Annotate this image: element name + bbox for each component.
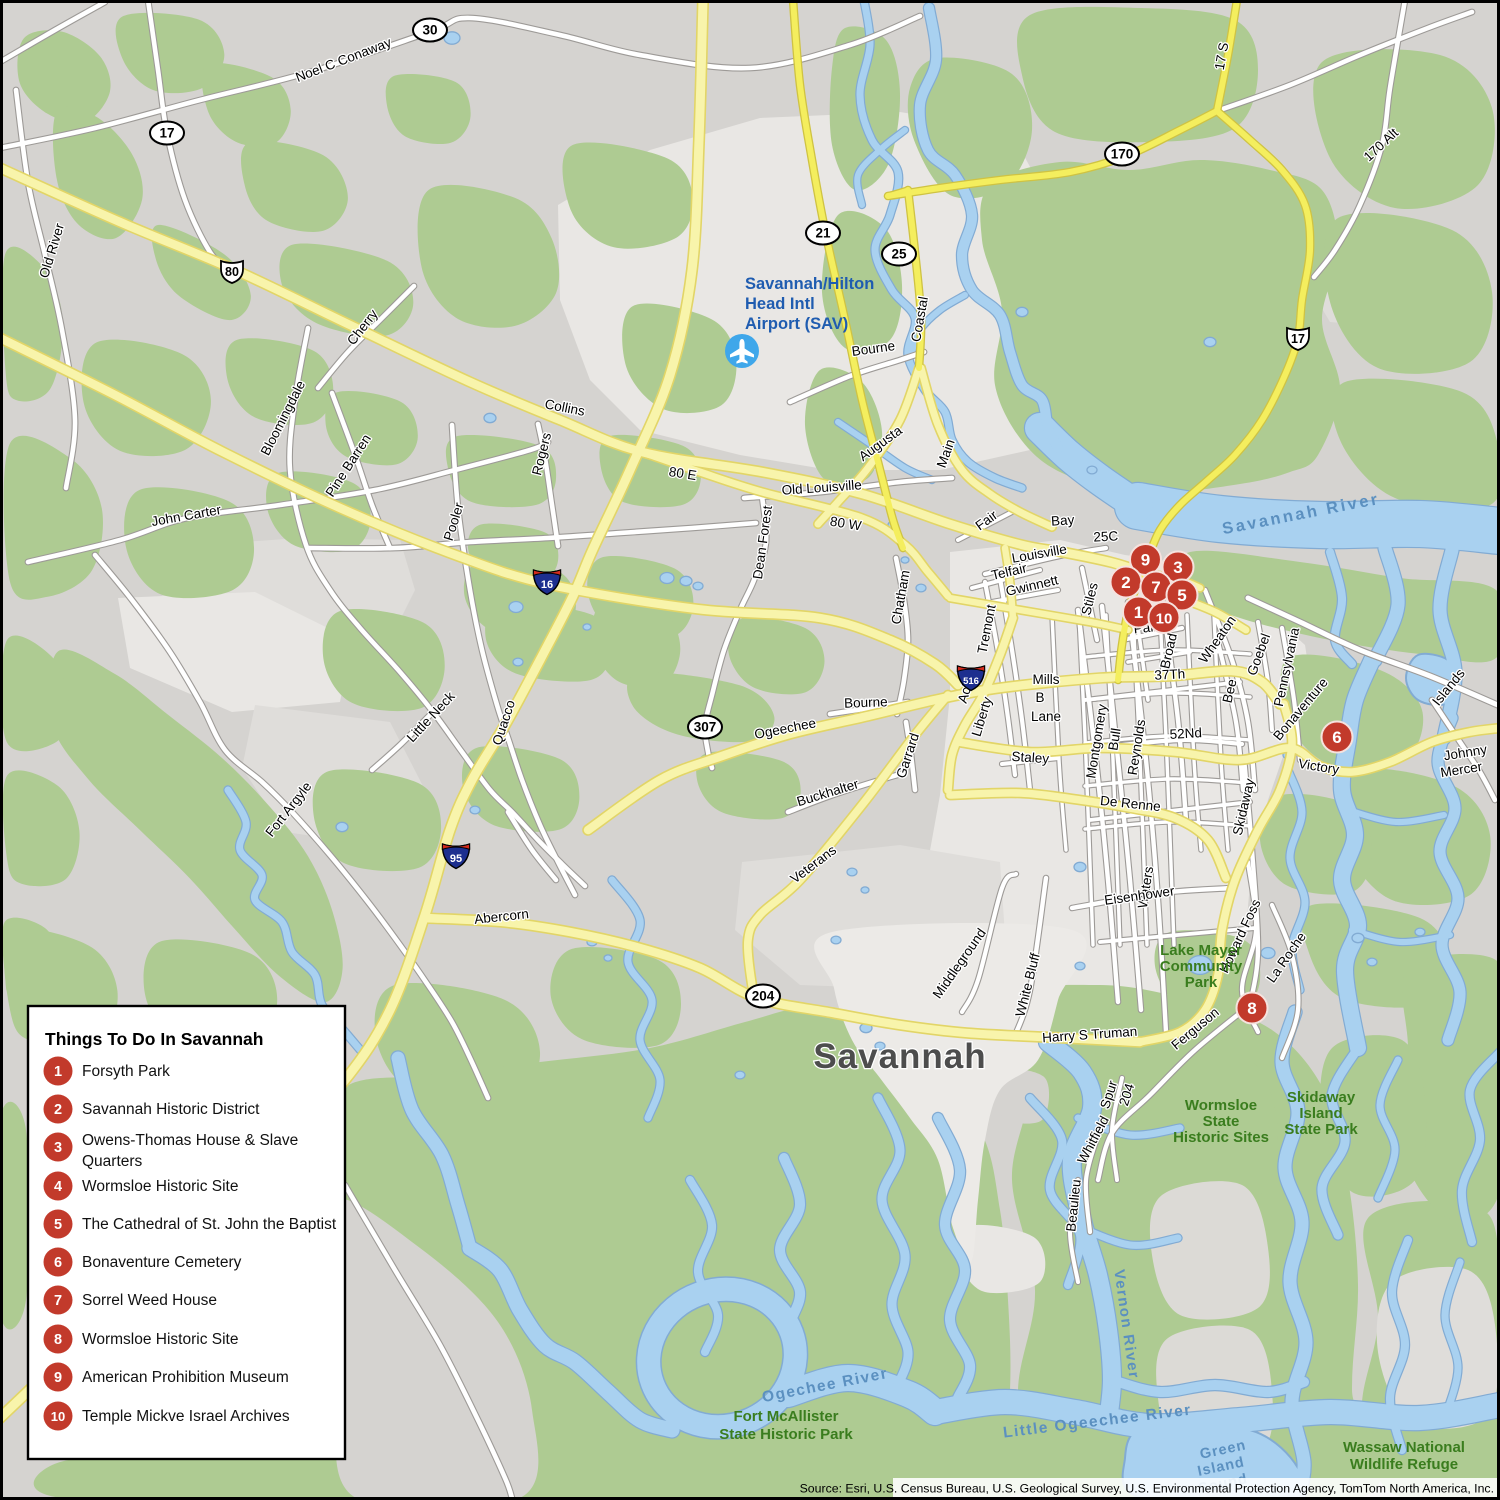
svg-text:6: 6 [1332,728,1341,747]
svg-text:95: 95 [450,853,462,865]
svg-text:Wildlife Refuge: Wildlife Refuge [1350,1456,1458,1473]
svg-text:Wormsloe: Wormsloe [1185,1097,1257,1114]
svg-text:3: 3 [1173,558,1182,577]
svg-text:204: 204 [752,989,775,1004]
svg-text:Savannah/Hilton: Savannah/Hilton [745,275,874,293]
svg-text:Wassaw National: Wassaw National [1343,1439,1465,1456]
svg-text:30: 30 [422,23,437,38]
svg-text:Savannah: Savannah [813,1037,986,1076]
svg-text:Community: Community [1160,958,1243,975]
svg-text:9: 9 [54,1370,62,1386]
svg-text:Forsyth Park: Forsyth Park [82,1063,170,1080]
svg-text:Historic Sites: Historic Sites [1173,1129,1269,1146]
svg-text:Park: Park [1185,974,1218,991]
svg-text:Quarters: Quarters [82,1153,143,1170]
svg-text:State Park: State Park [1284,1121,1358,1138]
svg-text:10: 10 [51,1409,65,1424]
svg-text:Island: Island [1299,1105,1342,1122]
svg-text:Airport (SAV): Airport (SAV) [745,315,848,333]
svg-text:Bay: Bay [1051,512,1076,529]
svg-text:Head Intl: Head Intl [745,295,815,313]
svg-text:Sorrel Weed House: Sorrel Weed House [82,1292,217,1309]
svg-text:2: 2 [1121,573,1130,592]
svg-text:State: State [1203,1113,1240,1130]
svg-text:B: B [1035,690,1044,705]
svg-text:307: 307 [694,720,717,735]
svg-text:Source: Esri, U.S. Census Bure: Source: Esri, U.S. Census Bureau, U.S. G… [800,1482,1494,1496]
svg-text:37Th: 37Th [1154,666,1186,683]
svg-text:170: 170 [1111,147,1134,162]
svg-text:Owens-Thomas House & Slave: Owens-Thomas House & Slave [82,1132,298,1149]
svg-text:Savannah Historic District: Savannah Historic District [82,1101,260,1118]
svg-text:5: 5 [54,1217,62,1233]
svg-text:25: 25 [891,247,907,262]
svg-text:State Historic Park: State Historic Park [719,1426,853,1443]
svg-text:1: 1 [54,1064,62,1080]
svg-text:Bourne: Bourne [844,694,888,711]
svg-text:10: 10 [1156,611,1173,628]
svg-text:Wormsloe Historic Site: Wormsloe Historic Site [82,1178,238,1195]
svg-text:17: 17 [1291,332,1305,346]
svg-text:6: 6 [54,1255,62,1271]
svg-text:17: 17 [159,126,174,141]
svg-text:American Prohibition Museum: American Prohibition Museum [82,1369,289,1386]
svg-text:8: 8 [1247,999,1256,1018]
svg-text:8: 8 [54,1332,62,1348]
svg-text:4: 4 [54,1179,62,1195]
svg-text:Lake Mayer: Lake Mayer [1160,942,1242,959]
svg-text:80: 80 [225,265,239,279]
svg-text:Bonaventure Cemetery: Bonaventure Cemetery [82,1254,242,1271]
svg-text:Things To Do In Savannah: Things To Do In Savannah [45,1029,263,1049]
svg-text:9: 9 [1141,551,1150,570]
svg-text:The Cathedral of St. John the: The Cathedral of St. John the Baptist [82,1216,337,1233]
svg-text:Mills: Mills [1033,672,1060,687]
svg-text:25C: 25C [1093,528,1119,544]
svg-text:5: 5 [1177,586,1186,605]
svg-text:16: 16 [541,579,553,591]
svg-text:516: 516 [963,676,979,687]
svg-text:Lane: Lane [1031,709,1061,724]
svg-text:7: 7 [54,1293,62,1309]
svg-text:21: 21 [815,226,831,241]
svg-text:7: 7 [1151,578,1160,597]
svg-text:Skidaway: Skidaway [1287,1089,1356,1106]
svg-text:Fort McAllister: Fort McAllister [733,1408,838,1425]
svg-text:Wormsloe Historic Site: Wormsloe Historic Site [82,1331,238,1348]
svg-text:52Nd: 52Nd [1169,725,1202,742]
svg-text:2: 2 [54,1102,62,1118]
svg-text:Staley: Staley [1011,749,1050,767]
svg-text:1: 1 [1134,603,1143,622]
svg-text:Temple Mickve Israel Archives: Temple Mickve Israel Archives [82,1408,290,1425]
svg-text:3: 3 [54,1140,62,1156]
